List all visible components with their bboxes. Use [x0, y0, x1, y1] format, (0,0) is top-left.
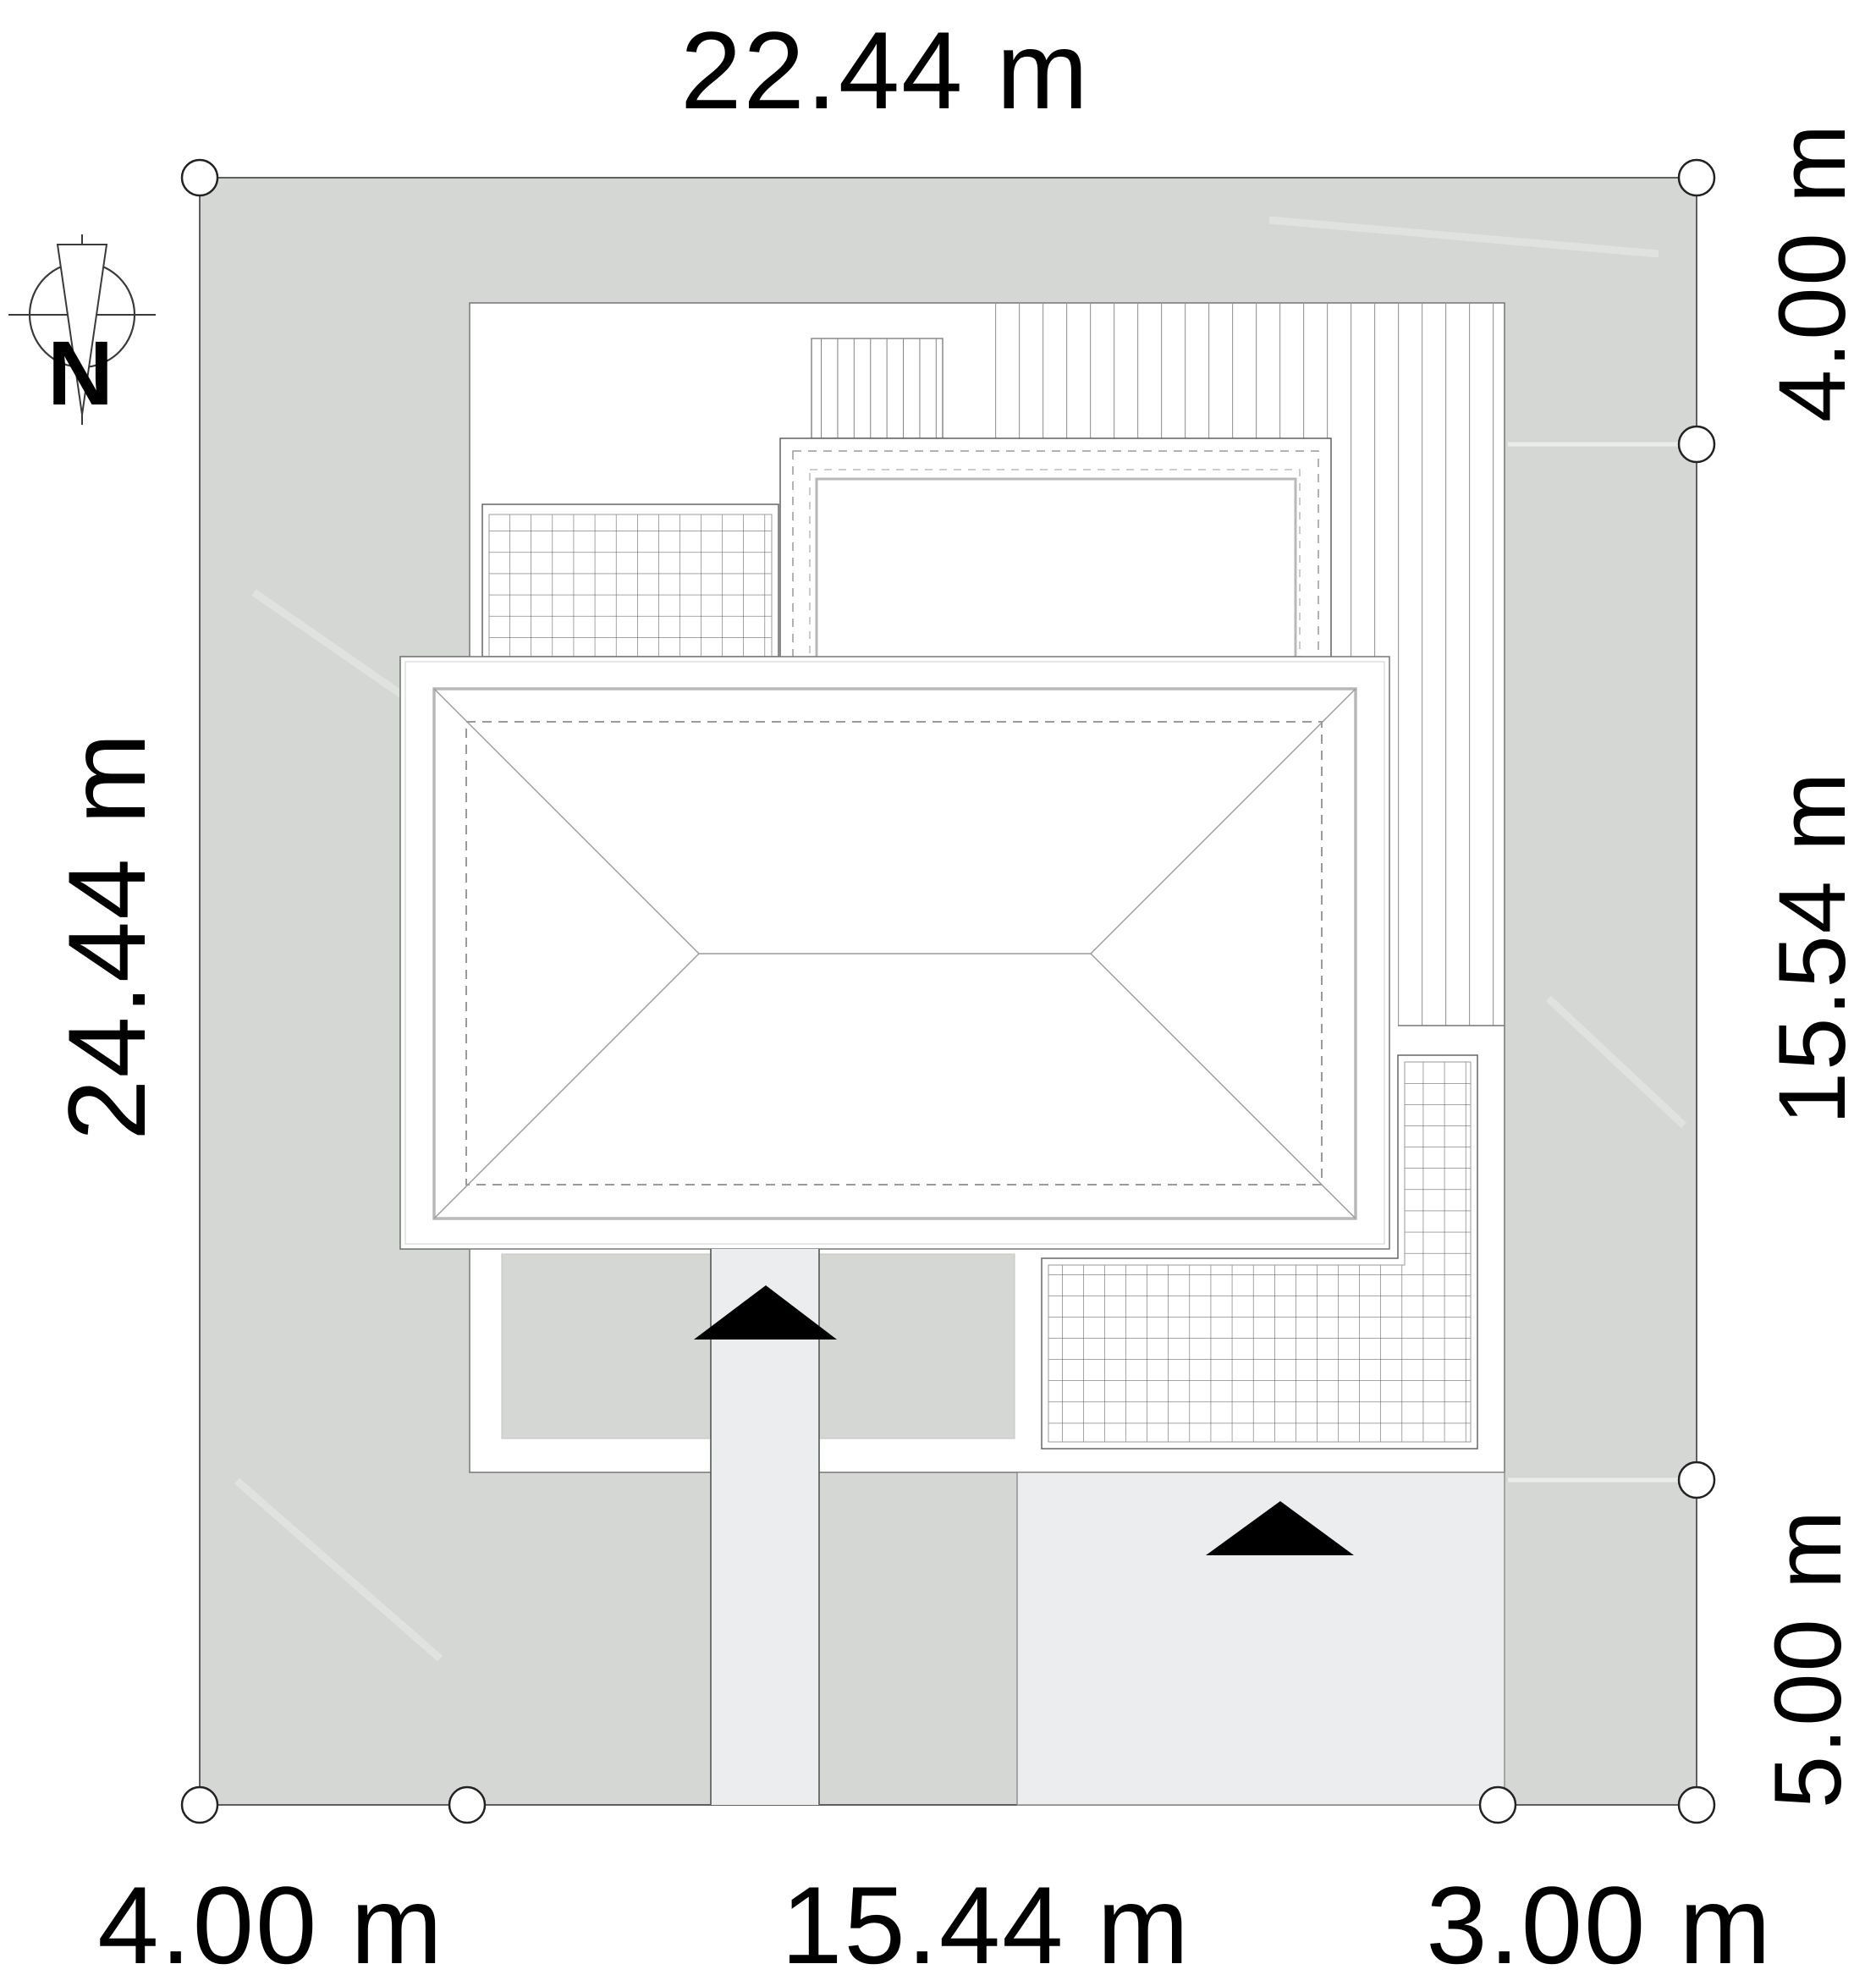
- garage-flat-roof: [780, 438, 1331, 668]
- site-plan-drawing: N 22.44 m 24.44 m 4.00 m 15.54 m 5.00 m …: [0, 0, 1876, 1986]
- north-compass: N: [8, 234, 156, 425]
- house-hipped-roof: [400, 657, 1389, 1249]
- pergola-board-pattern: [811, 338, 943, 438]
- boundary-marker-sw: [182, 1787, 217, 1823]
- boundary-marker-se: [1679, 1787, 1714, 1823]
- dimension-bottom-left: 4.00 m: [97, 1863, 443, 1986]
- dimension-right-top: 4.00 m: [1759, 123, 1865, 422]
- boundary-marker-east-lower: [1679, 1462, 1714, 1498]
- boundary-marker-east-upper: [1679, 426, 1714, 462]
- terrace-grid-left: [482, 504, 778, 657]
- site-plan: N 22.44 m 24.44 m 4.00 m 15.54 m 5.00 m …: [0, 0, 1876, 1986]
- boundary-marker-south-right: [1480, 1787, 1516, 1823]
- dimension-right-bottom: 5.00 m: [1755, 1509, 1861, 1808]
- dimension-top: 22.44 m: [680, 8, 1090, 132]
- dimension-right-middle: 15.54 m: [1759, 771, 1865, 1125]
- garage-roof-outline: [780, 438, 1331, 668]
- boundary-marker-south-left: [449, 1787, 485, 1823]
- dimension-bottom-middle: 15.44 m: [781, 1863, 1191, 1986]
- boundary-marker-nw: [182, 160, 217, 195]
- north-label: N: [47, 322, 113, 424]
- terrace-left-grid: [489, 514, 772, 657]
- dimension-bottom-right: 3.00 m: [1426, 1863, 1772, 1986]
- boundary-marker-ne: [1679, 160, 1714, 195]
- dimension-left: 24.44 m: [45, 731, 168, 1141]
